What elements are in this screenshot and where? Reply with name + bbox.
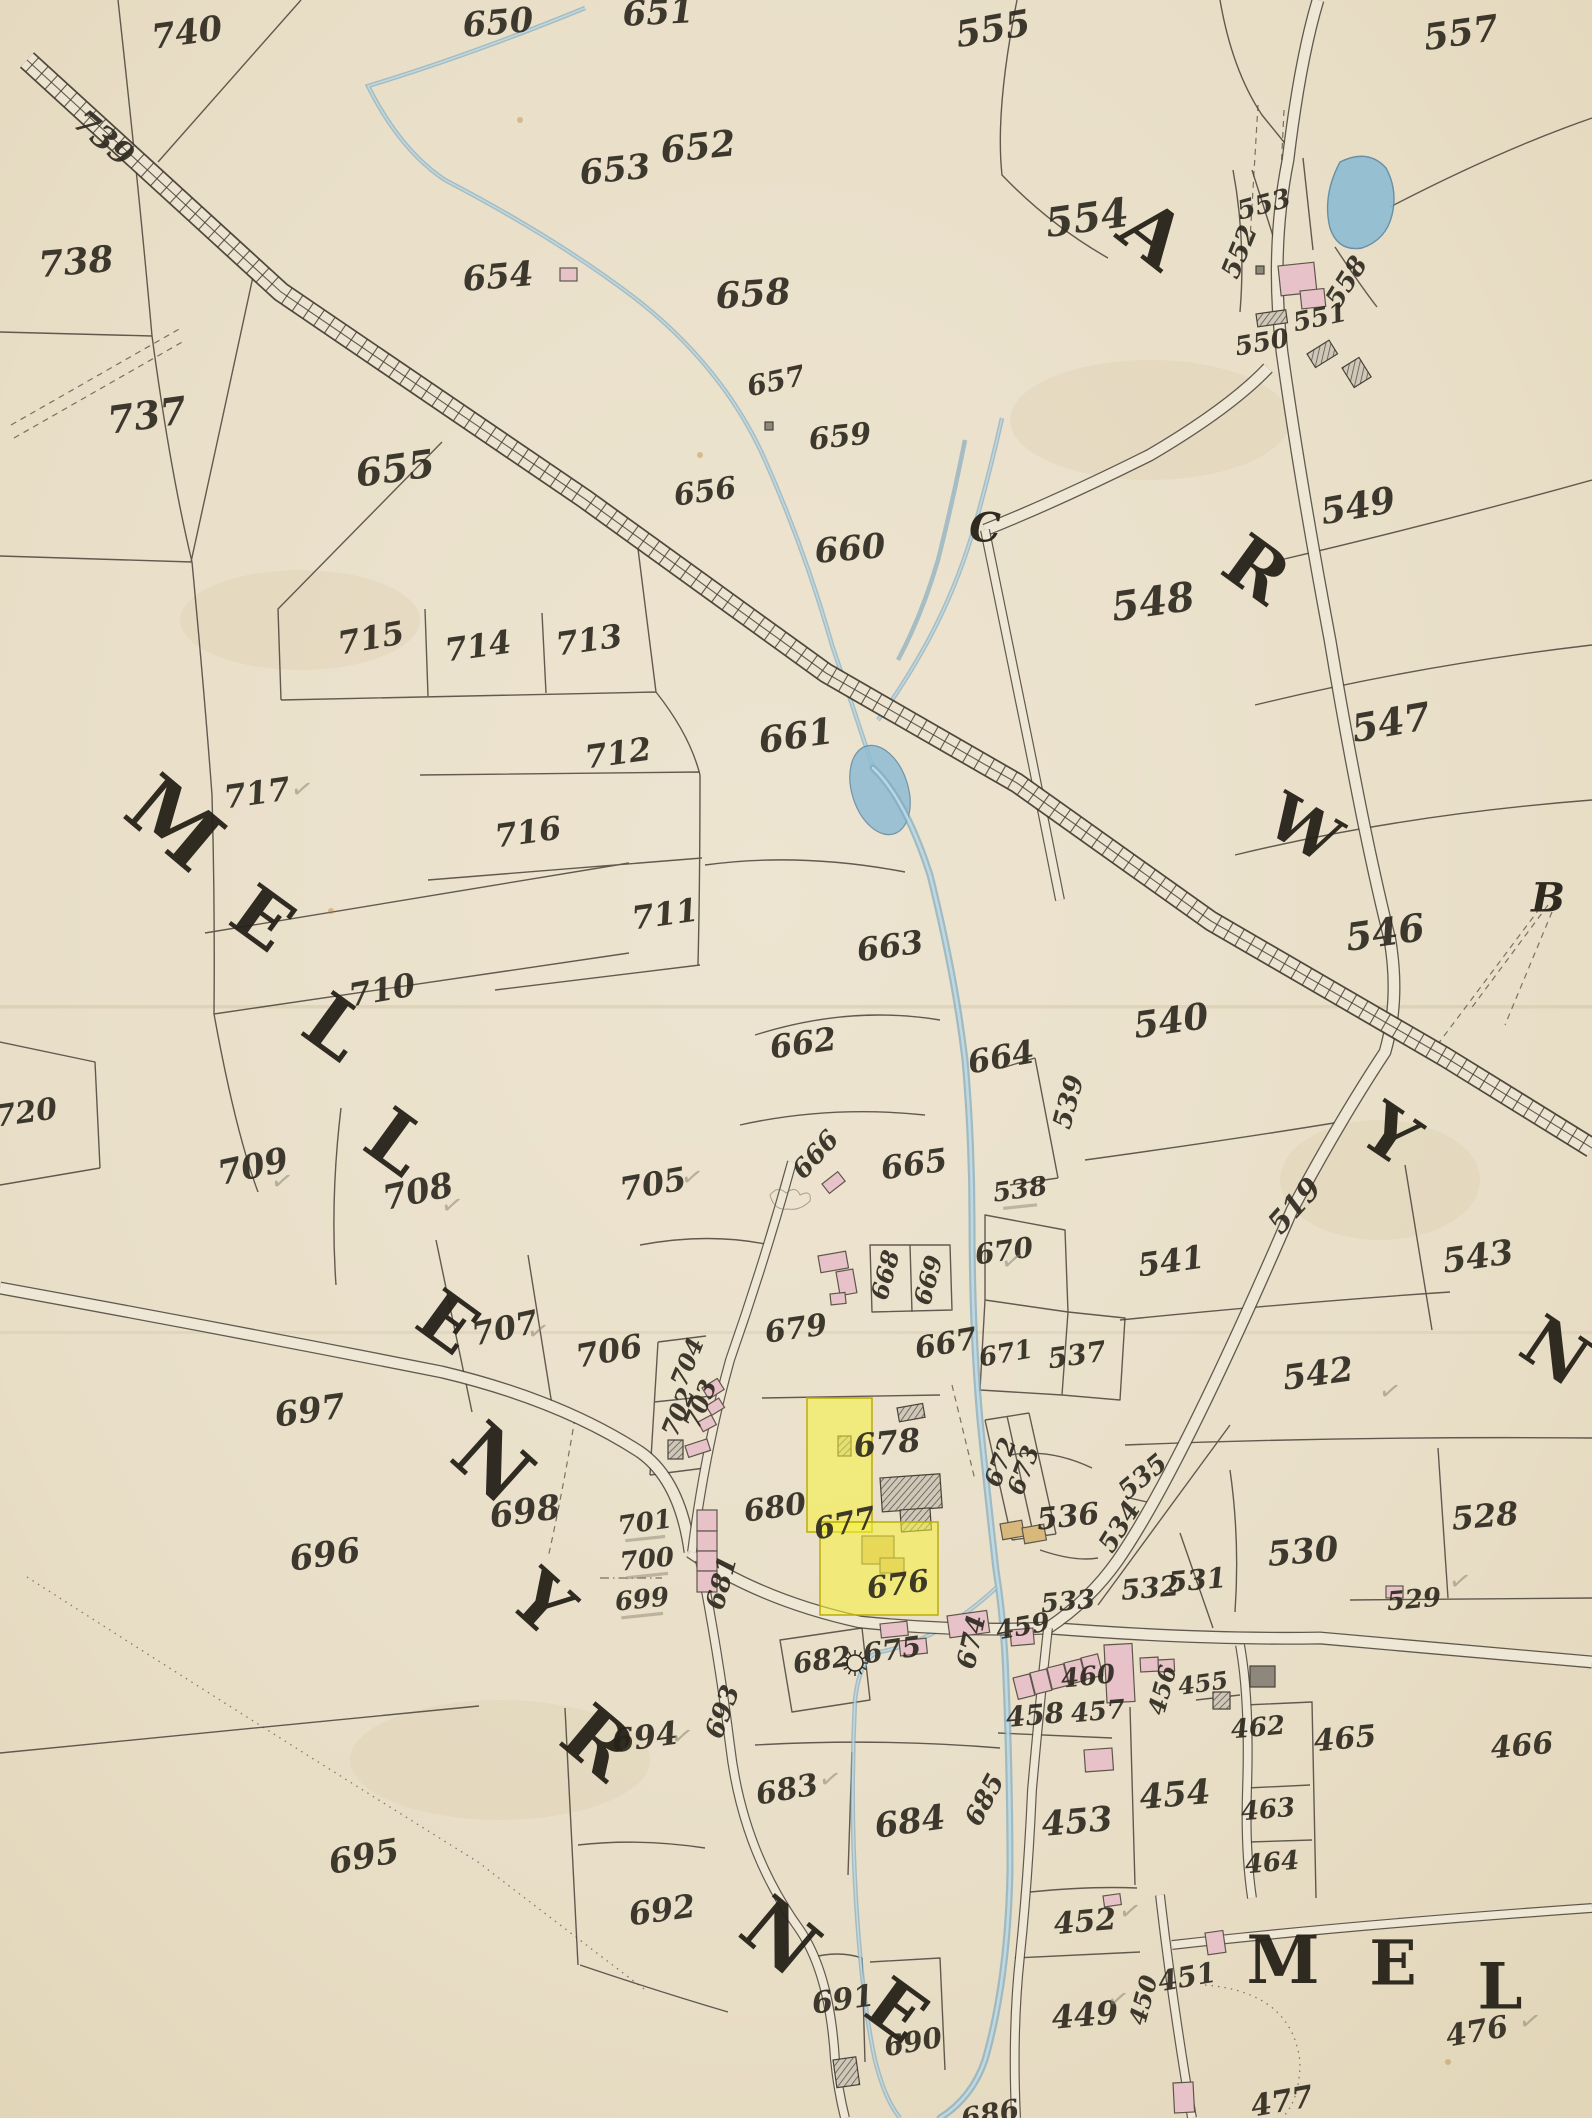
building-hatch [880,1474,942,1512]
parcel-label-463: 463 [1240,1793,1297,1828]
parcel-label-654: 654 [461,254,535,300]
parcel-label-533: 533 [1040,1585,1097,1620]
parcel-label-529: 529 [1386,1583,1443,1618]
district-letter-E: E [1369,1927,1416,2000]
district-letter-L: L [1478,1950,1523,2025]
parcel-label-659: 659 [807,416,873,457]
parcel-label-678: 678 [852,1421,922,1466]
parcel-label-738: 738 [37,238,116,286]
stain [697,452,703,458]
stain [517,117,523,123]
parcel-label-699: 699 [613,1582,670,1618]
index-letter-B: B [1530,875,1565,922]
parcel-label-651: 651 [622,0,695,35]
parcel-label-462: 462 [1230,1711,1287,1746]
cadastral-map-canvas: 7406506517397387376536526546586576596556… [0,0,1592,2118]
building-pink [697,1510,717,1531]
building-hatch [668,1440,683,1459]
building-gray [765,422,773,430]
parcel-label-465: 465 [1312,1719,1377,1759]
parcel-label-660: 660 [813,526,888,572]
parcel-label-466: 466 [1489,1726,1555,1766]
parcel-label-652: 652 [658,122,737,172]
parcel-label-653: 653 [578,146,653,193]
parcel-label-457: 457 [1070,1695,1127,1730]
building-gray [1256,266,1264,274]
parcel-label-454: 454 [1138,1772,1212,1818]
building-pink [560,268,577,281]
parcel-label-458: 458 [1004,1696,1065,1734]
parcel-label-650: 650 [461,0,536,46]
parcel-label-700: 700 [618,1542,675,1578]
parcel-label-452: 452 [1052,1902,1117,1942]
building-pink [1205,1930,1226,1954]
building-hatch [833,2057,860,2088]
parcel-label-460: 460 [1059,1659,1116,1695]
building-pink [1084,1748,1113,1772]
parcel-label-453: 453 [1040,1799,1114,1845]
parcel-label-530: 530 [1266,1529,1341,1575]
map-stage: 7406506517397387376536526546586576596556… [0,0,1592,2118]
parcel-label-658: 658 [714,270,792,317]
parcel-label-528: 528 [1450,1494,1520,1538]
parcel-label-464: 464 [1244,1846,1301,1881]
building-pink [830,1292,846,1305]
building-tan [1000,1520,1024,1540]
building-gray [1250,1666,1275,1687]
building-pink [836,1269,857,1296]
district-letter-M: M [1246,1921,1319,1999]
parcel-label-531: 531 [1166,1561,1227,1599]
stain [1445,2059,1451,2065]
building-pink [1173,2082,1195,2113]
stain [328,908,334,914]
parcel-label-536: 536 [1035,1496,1101,1537]
index-letter-C: C [969,505,1001,552]
building-pink [697,1531,717,1551]
